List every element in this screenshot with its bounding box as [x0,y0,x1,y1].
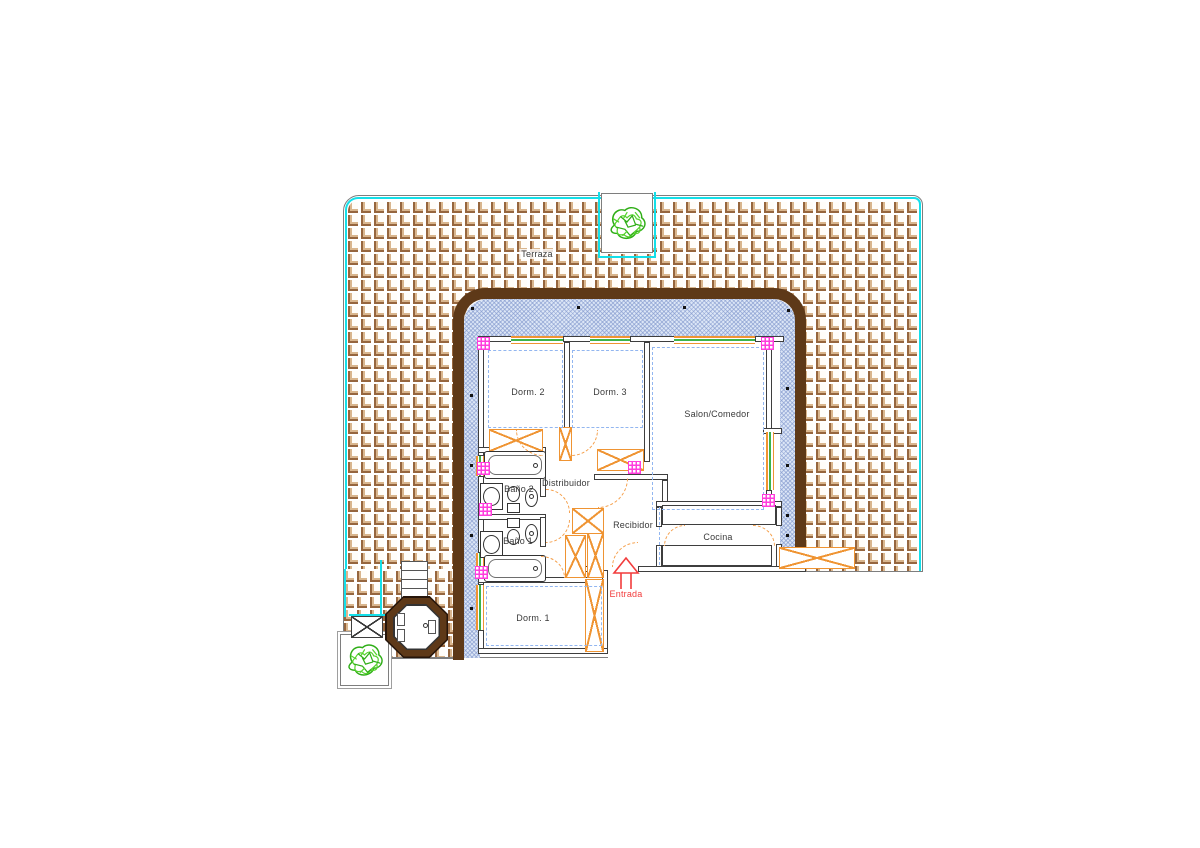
entrance-label: Entrada [610,589,643,599]
column-marker [761,337,774,350]
column-marker [762,494,775,507]
wall-dot [471,307,474,310]
wall [478,630,484,650]
jacuzzi-seat [397,613,405,626]
window [590,336,630,344]
wardrobe [587,533,604,578]
room-label-bano2: Baño 2 [504,484,534,494]
open-plan-dashed-line [659,507,660,565]
wall-dot [470,607,473,610]
wardrobe [572,508,604,534]
kitchen-counter [662,545,772,566]
bench-crossed [351,616,383,638]
room-label-cocina: Cocina [703,532,732,542]
window [511,336,563,344]
wall [478,336,484,456]
room-label-bano1: Baño 1 [503,536,533,546]
stair-steps [401,561,428,600]
window [766,432,774,490]
planter-top-cyan-edge [598,192,656,258]
planter-top [601,193,653,253]
pool-edge-cyan-step [380,560,382,617]
wall-dot [787,309,790,312]
column-marker [477,337,490,350]
wall [564,342,570,434]
wall-dot [577,306,580,309]
planter-bottom-left [340,634,389,686]
wall [644,342,650,462]
room-label-terraza: Terraza [519,249,554,259]
terrace-storage-box [779,547,855,569]
room-label-dorm3: Dorm. 3 [593,387,626,397]
wall-dot [470,464,473,467]
jacuzzi-jet [423,623,428,628]
wall [776,507,782,526]
wall-dot [786,534,789,537]
exterior-wall-brown-left-leg [453,540,464,660]
column-marker [475,566,488,579]
column-marker [477,462,490,475]
window [476,585,484,630]
room-label-dorm2: Dorm. 2 [511,387,544,397]
room-label-dorm1: Dorm. 1 [516,613,549,623]
jacuzzi-seat [428,620,436,634]
pool-edge-cyan-segment [344,569,346,617]
room-label-recibidor: Recibidor [613,520,653,530]
wall [766,336,772,430]
column-marker [479,503,492,516]
column-marker [628,461,641,474]
wall-dot [786,387,789,390]
wall-dot [683,306,686,309]
ceiling-dashed-outline [652,347,764,510]
room-label-distribuidor: Distribuidor [542,478,590,488]
plant-icon [604,197,650,249]
wardrobe [565,535,586,578]
room-label-salon: Salon/Comedor [684,409,749,419]
wall-dot [470,394,473,397]
wall-dot [786,514,789,517]
jacuzzi-octagon [385,596,448,658]
window [674,336,755,344]
bathtub [484,555,546,582]
jacuzzi-seat [397,629,405,642]
plant-icon [342,636,387,684]
arrow-up-icon [612,556,640,592]
wall [630,336,676,342]
wall-dot [786,464,789,467]
floor-plan-canvas: Terraza Dorm. 2 Dorm. 3 Salon/Comedor Di… [0,0,1200,848]
sink [480,531,503,558]
wall-dot [470,534,473,537]
